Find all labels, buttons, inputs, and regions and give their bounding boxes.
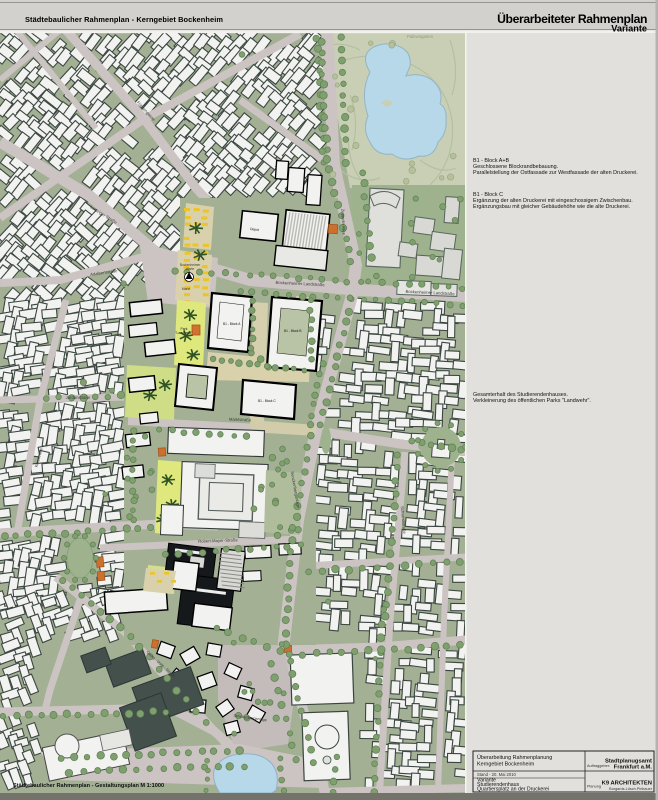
- svg-text:Parallelstellung der Ostfassad: Parallelstellung der Ostfassade zur West…: [473, 170, 638, 176]
- svg-text:Überarbeitung Rahmenplanung: Überarbeitung Rahmenplanung: [477, 754, 552, 761]
- svg-text:Stand - 20. Mai 2010: Stand - 20. Mai 2010: [477, 772, 517, 777]
- svg-text:Frankfurt a.M.: Frankfurt a.M.: [614, 765, 653, 771]
- svg-text:Quartiersplatz an der Druckere: Quartiersplatz an der Druckerei: [477, 787, 549, 793]
- svg-text:"Landwehr": "Landwehr": [175, 331, 193, 335]
- svg-text:B1 - Block C: B1 - Block C: [258, 399, 276, 403]
- svg-text:Kerngebiet Bockenheim: Kerngebiet Bockenheim: [477, 762, 535, 768]
- svg-text:Palmengarten: Palmengarten: [407, 34, 434, 39]
- svg-text:Auftraggeber:: Auftraggeber:: [587, 764, 610, 768]
- svg-text:Städtebaulicher Rahmenplan - G: Städtebaulicher Rahmenplan - Gestaltungs…: [13, 783, 164, 789]
- svg-text:Marktstraße: Marktstraße: [229, 417, 252, 423]
- svg-text:Planung: Planung: [587, 785, 601, 789]
- svg-text:Verkleinerung des öffentlichen: Verkleinerung des öffentlichen Parks "La…: [473, 398, 591, 404]
- svg-text:Markt: Markt: [182, 287, 191, 291]
- svg-text:Ergänzungsbau mit gleicher Geb: Ergänzungsbau mit gleicher Gebäudehöhe w…: [473, 204, 630, 210]
- svg-text:Variante: Variante: [611, 24, 647, 34]
- svg-text:B1 - Block A: B1 - Block A: [223, 322, 241, 326]
- svg-text:Jordanstraße: Jordanstraße: [66, 395, 91, 400]
- svg-text:K9 ARCHITEKTEN: K9 ARCHITEKTEN: [602, 781, 652, 787]
- svg-text:Borgards.Lösch.Piribauer: Borgards.Lösch.Piribauer: [609, 787, 653, 791]
- svg-text:Warte: Warte: [186, 267, 195, 271]
- svg-text:Städtebaulicher Rahmenplan - K: Städtebaulicher Rahmenplan - Kerngebiet …: [25, 15, 223, 24]
- svg-text:B1 - Block B: B1 - Block B: [284, 329, 302, 333]
